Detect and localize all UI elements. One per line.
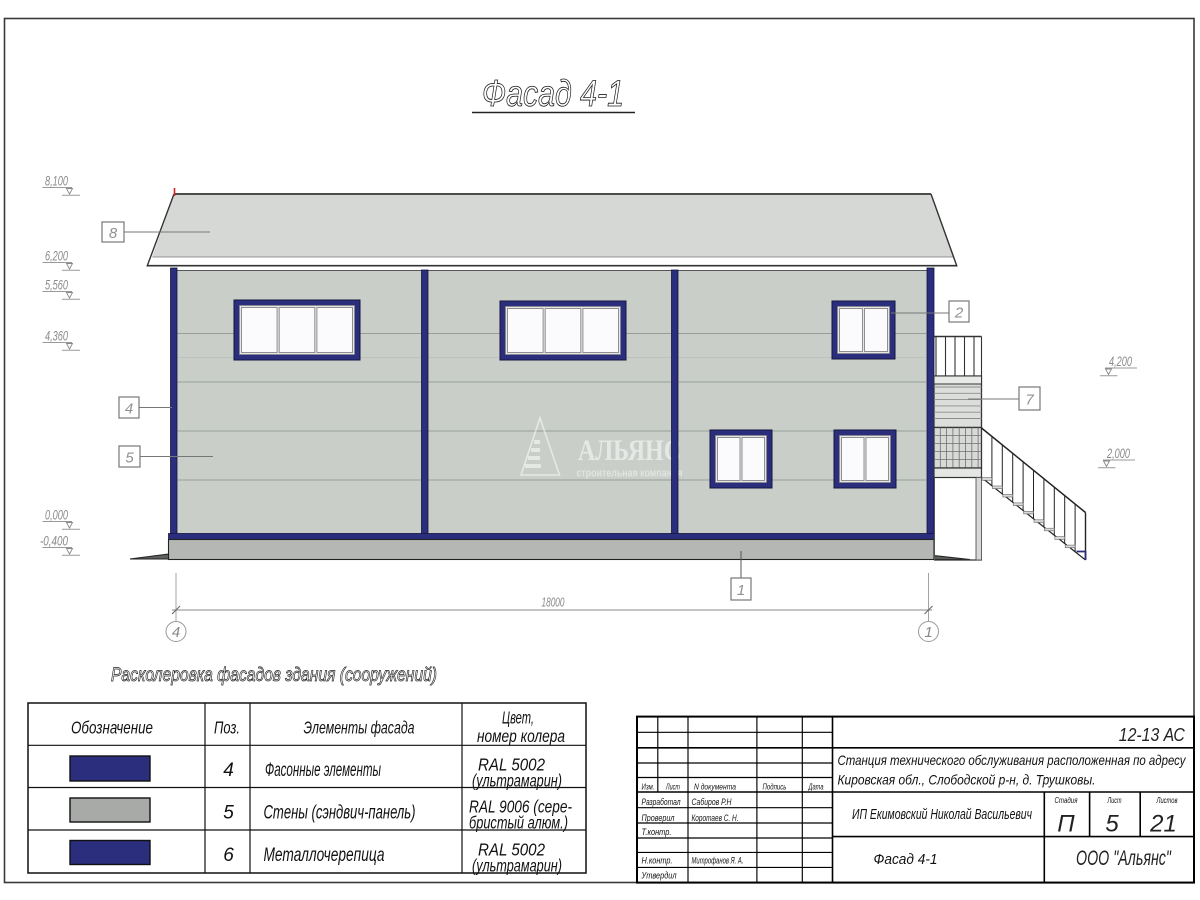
svg-text:Коротаев С. Н.: Коротаев С. Н. bbox=[692, 813, 739, 824]
svg-text:-0,400: -0,400 bbox=[40, 533, 68, 549]
svg-text:5: 5 bbox=[1105, 811, 1119, 838]
svg-text:4,360: 4,360 bbox=[45, 328, 68, 344]
svg-text:Лист: Лист bbox=[665, 782, 680, 792]
svg-text:Митрофанов Я. А.: Митрофанов Я. А. bbox=[692, 855, 744, 866]
svg-text:Т.контр.: Т.контр. bbox=[642, 827, 672, 838]
svg-text:Изм.: Изм. bbox=[642, 782, 655, 792]
svg-text:Расколеровка фасадов здания (с: Расколеровка фасадов здания (сооружений) bbox=[111, 664, 437, 686]
svg-text:Подпись: Подпись bbox=[763, 782, 787, 792]
svg-text:5: 5 bbox=[223, 803, 234, 824]
svg-text:Цвет,: Цвет, bbox=[502, 708, 534, 728]
svg-text:Стадия: Стадия bbox=[1055, 796, 1078, 805]
svg-text:Элементы фасада: Элементы фасада bbox=[304, 718, 415, 738]
svg-text:2: 2 bbox=[954, 305, 964, 322]
svg-text:Разработал: Разработал bbox=[642, 797, 681, 808]
svg-text:7: 7 bbox=[1025, 392, 1034, 409]
svg-text:4: 4 bbox=[125, 401, 133, 418]
svg-text:8,100: 8,100 bbox=[45, 173, 68, 189]
svg-text:П: П bbox=[1057, 811, 1075, 838]
svg-text:Листов: Листов bbox=[1156, 796, 1178, 805]
svg-text:Утвердил: Утвердил bbox=[641, 871, 677, 882]
svg-text:21: 21 bbox=[1149, 811, 1177, 838]
svg-text:4,200: 4,200 bbox=[1109, 353, 1132, 369]
svg-text:Станция технического обслужива: Станция технического обслуживания распол… bbox=[838, 752, 1187, 768]
svg-text:4: 4 bbox=[172, 624, 180, 641]
svg-text:8: 8 bbox=[109, 225, 118, 242]
svg-text:Кировская обл., Слободской р-н: Кировская обл., Слободской р-н, д. Трушк… bbox=[838, 772, 1096, 788]
svg-text:ООО "Альянс": ООО "Альянс" bbox=[1076, 847, 1172, 870]
svg-text:Лист: Лист bbox=[1107, 796, 1122, 805]
svg-text:Стены (сэндвич-панель): Стены (сэндвич-панель) bbox=[264, 803, 416, 824]
svg-text:12-13 АС: 12-13 АС bbox=[1119, 725, 1186, 745]
svg-text:Металлочерепица: Металлочерепица bbox=[264, 845, 385, 866]
svg-text:1: 1 bbox=[924, 624, 932, 641]
svg-text:строительная компания: строительная компания bbox=[577, 468, 683, 480]
svg-text:Сабиров Р.Н: Сабиров Р.Н bbox=[692, 797, 732, 808]
svg-text:5,560: 5,560 bbox=[45, 277, 68, 293]
svg-text:номер колера: номер колера bbox=[477, 726, 565, 746]
svg-text:Фасад 4-1: Фасад 4-1 bbox=[482, 73, 624, 114]
svg-text:бристый алюм.): бристый алюм.) bbox=[469, 813, 568, 833]
svg-text:Дата: Дата bbox=[808, 782, 824, 792]
svg-text:0,000: 0,000 bbox=[45, 507, 68, 523]
svg-text:Фасонные элементы: Фасонные элементы bbox=[265, 760, 381, 781]
svg-text:ИП Екимовский Николай Васильев: ИП Екимовский Николай Васильевич bbox=[852, 806, 1032, 823]
svg-text:1: 1 bbox=[737, 582, 745, 599]
svg-text:Поз.: Поз. bbox=[214, 718, 240, 738]
svg-text:Н.контр.: Н.контр. bbox=[642, 855, 673, 866]
svg-text:4: 4 bbox=[223, 760, 234, 781]
svg-text:6,200: 6,200 bbox=[45, 248, 68, 264]
svg-text:N документа: N документа bbox=[694, 782, 736, 792]
svg-text:(ультрамарин): (ультрамарин) bbox=[472, 855, 562, 875]
svg-text:5: 5 bbox=[125, 450, 134, 467]
svg-text:Фасад 4-1: Фасад 4-1 bbox=[874, 851, 938, 868]
svg-text:18000: 18000 bbox=[542, 595, 565, 610]
svg-text:2,000: 2,000 bbox=[1106, 445, 1130, 461]
svg-text:6: 6 bbox=[223, 845, 234, 866]
svg-text:Проверил: Проверил bbox=[642, 813, 675, 824]
svg-text:АЛЬЯНС: АЛЬЯНС bbox=[578, 434, 681, 467]
svg-text:Обозначение: Обозначение bbox=[71, 718, 153, 738]
svg-text:(ультрамарин): (ультрамарин) bbox=[472, 771, 562, 791]
